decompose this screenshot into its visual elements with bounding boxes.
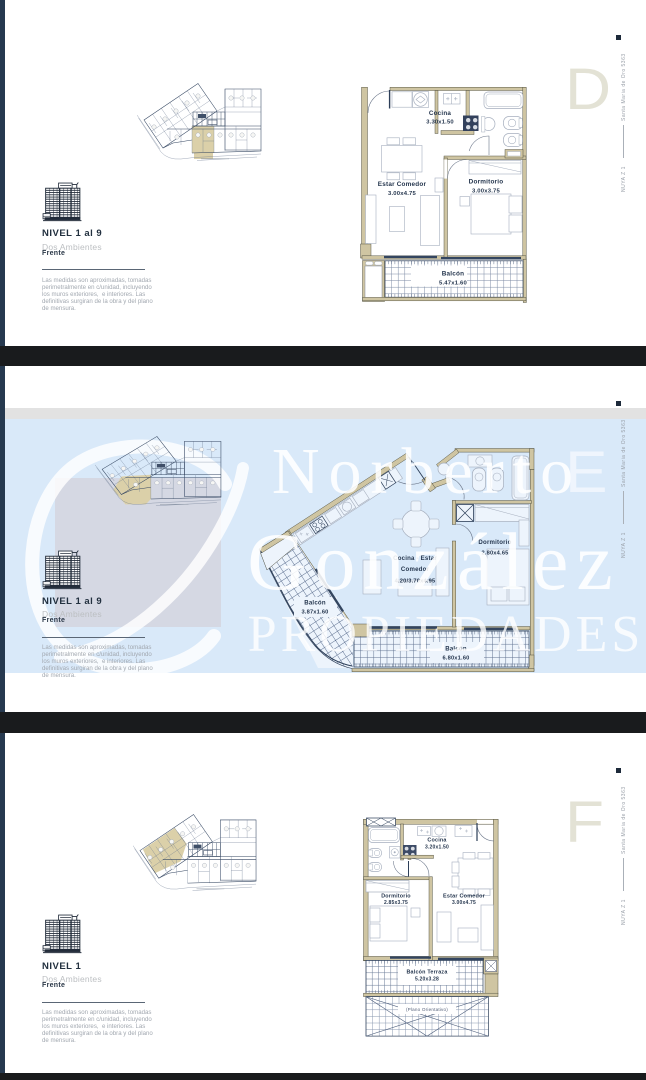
svg-text:5.20x3.28: 5.20x3.28	[415, 977, 439, 983]
svg-text:Estar Comedor: Estar Comedor	[378, 181, 427, 188]
svg-text:Dormitorio: Dormitorio	[469, 179, 504, 186]
svg-text:Dormitorio: Dormitorio	[381, 894, 411, 900]
svg-text:2.85x3.75: 2.85x3.75	[384, 900, 408, 906]
svg-text:Balcón: Balcón	[442, 271, 465, 278]
svg-text:Balcón Terraza: Balcón Terraza	[406, 970, 448, 976]
svg-text:Estar Comedor: Estar Comedor	[443, 894, 486, 900]
svg-text:3.20x1.50: 3.20x1.50	[425, 845, 449, 851]
svg-text:3.00x4.75: 3.00x4.75	[388, 191, 417, 197]
svg-text:PROPIEDADES: PROPIEDADES	[248, 606, 645, 663]
svg-text:3.00x3.75: 3.00x3.75	[472, 189, 501, 195]
svg-text:(Plano Orientativo): (Plano Orientativo)	[406, 1007, 448, 1012]
svg-text:González: González	[247, 516, 621, 607]
svg-text:5.47x1.60: 5.47x1.60	[439, 281, 468, 287]
svg-text:3.00x4.75: 3.00x4.75	[452, 900, 476, 906]
svg-text:Norberto: Norberto	[272, 435, 582, 508]
svg-text:3.30x1.50: 3.30x1.50	[426, 120, 454, 126]
svg-text:Cocina: Cocina	[427, 838, 447, 844]
svg-text:Cocina: Cocina	[429, 110, 451, 117]
